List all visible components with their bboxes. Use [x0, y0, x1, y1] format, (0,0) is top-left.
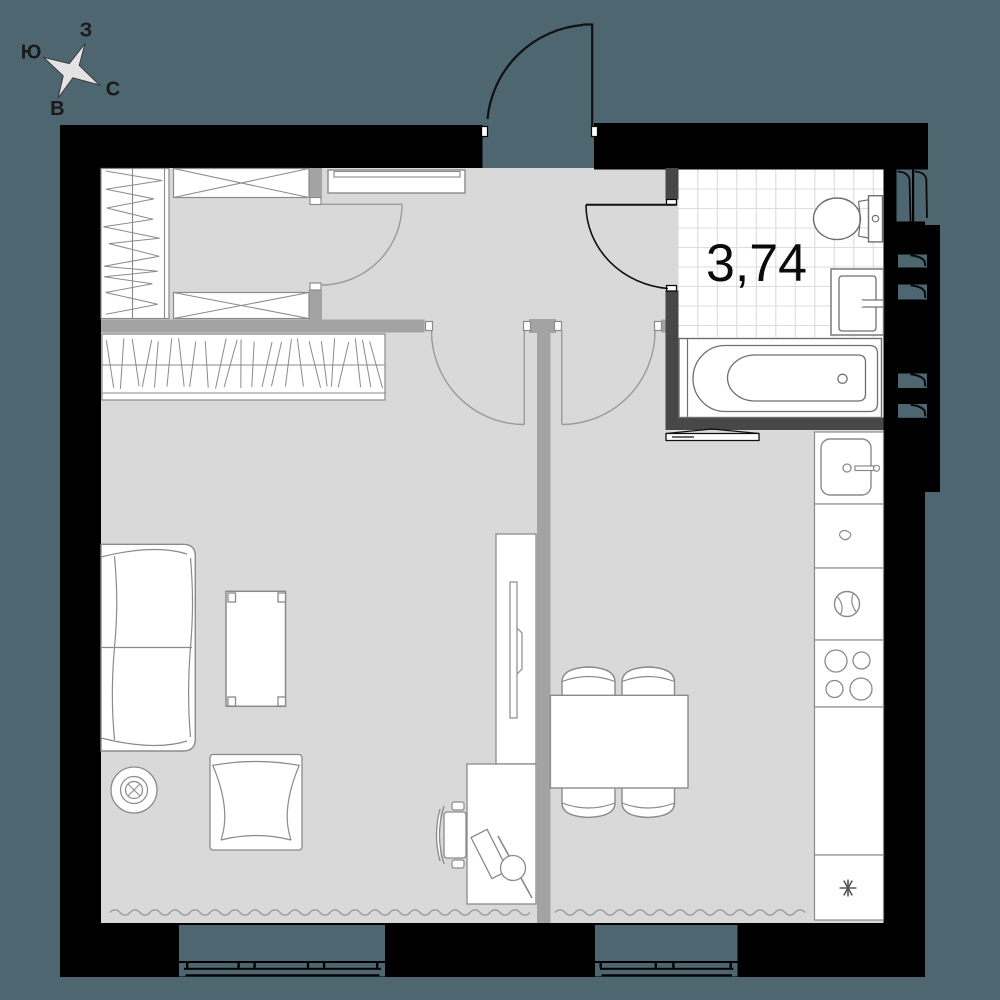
- svg-text:3,74: 3,74: [706, 234, 807, 293]
- svg-text:Ю: Ю: [21, 41, 42, 63]
- svg-text:В: В: [50, 98, 64, 120]
- svg-text:З: З: [80, 19, 93, 41]
- svg-text:С: С: [106, 79, 120, 101]
